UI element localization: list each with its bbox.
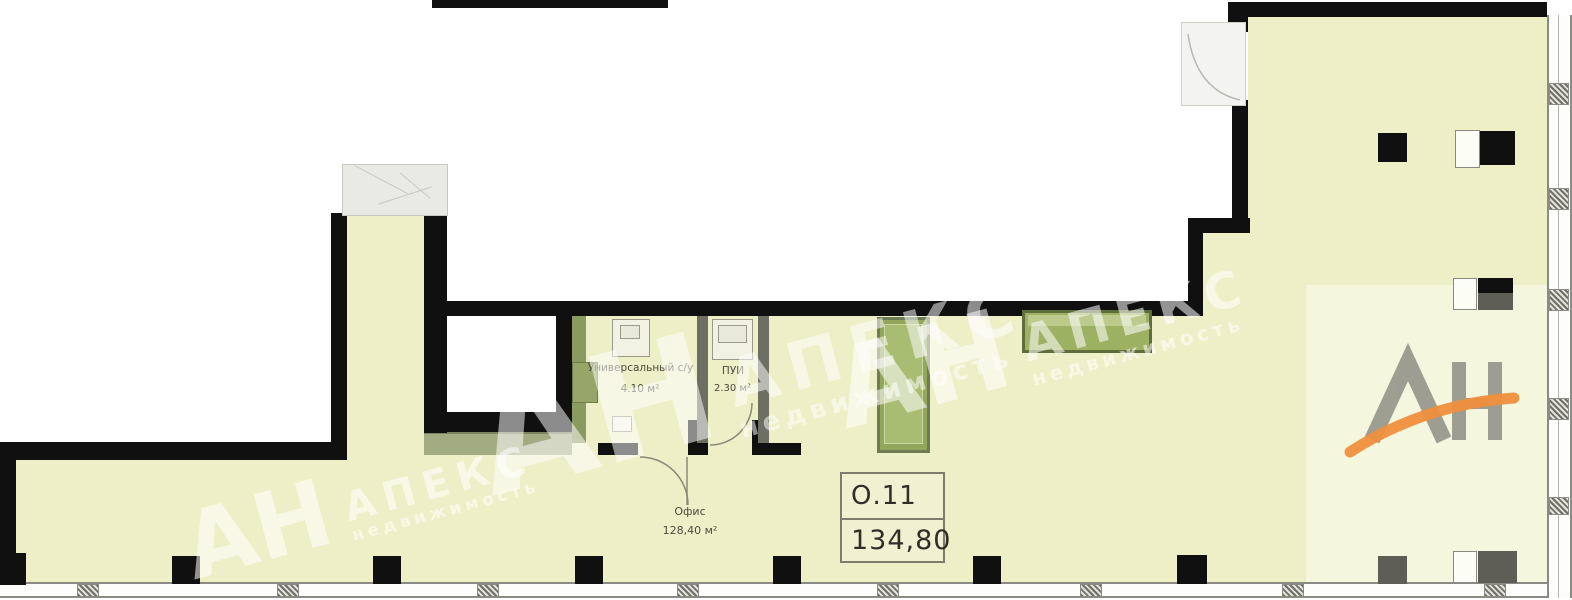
window-hatch (877, 584, 899, 597)
column (575, 556, 603, 584)
unit-total-area: 134,80 (842, 520, 943, 561)
window-hatch (1549, 497, 1569, 515)
shaft-void (447, 316, 556, 412)
green-band-under-shaft (424, 432, 572, 455)
column-outline (1453, 278, 1477, 310)
floorplan-canvas: Универсальный с/у 4.10 м² ПУИ 2.30 м² Оф… (0, 0, 1572, 600)
wall-strip-right (424, 215, 447, 433)
room-label-su-area: 4.10 м² (600, 384, 680, 395)
wall-top-edge-fragment (432, 0, 668, 8)
partition-pui-right (758, 316, 769, 443)
light-zone-overlay (1306, 285, 1547, 582)
wall-strip-left (331, 213, 347, 460)
entry-door-box (1181, 22, 1246, 106)
wall-shaft-bottom (424, 412, 572, 432)
room-label-pui-name: ПУИ (703, 366, 763, 377)
room-label-pui-area: 2.30 м² (700, 384, 765, 395)
window-hatch (1484, 584, 1506, 597)
window-hatch (1549, 398, 1569, 420)
column-gray (1478, 293, 1513, 310)
column (0, 553, 26, 585)
column (373, 556, 401, 584)
column-outline (1453, 551, 1477, 583)
column (773, 556, 801, 584)
column-outline (1455, 130, 1480, 168)
window-hatch (477, 584, 499, 597)
toilet-fixture (612, 319, 650, 357)
column (1378, 133, 1407, 162)
column (1478, 278, 1513, 293)
wall-su-bottom (598, 443, 638, 455)
column (172, 556, 200, 584)
toilet-tank (620, 325, 640, 339)
sink-fixture (612, 416, 632, 432)
wall-tower-top (1228, 2, 1547, 17)
column-gray (1378, 556, 1407, 584)
window-band-bottom (0, 582, 1572, 598)
window-hatch (77, 584, 99, 597)
column (1480, 131, 1515, 165)
window-hatch (1549, 289, 1569, 311)
wall-pui-foot (752, 443, 801, 455)
pui-shelf-inner (718, 325, 747, 343)
floor-right-tower-lower (1203, 233, 1248, 582)
stair-line (378, 186, 432, 204)
window-hatch (1282, 584, 1304, 597)
glass-door-inner (884, 324, 923, 444)
room-label-office-area: 128,40 м² (630, 525, 750, 537)
column (1177, 555, 1207, 584)
unit-info-box: О.11 134,80 (840, 472, 945, 563)
pui-shelf-fixture (712, 319, 753, 360)
sofa-back-cushion (1028, 315, 1146, 326)
partition-su-right (697, 316, 708, 443)
stair-line (354, 165, 407, 194)
window-hatch (677, 584, 699, 597)
window-hatch (277, 584, 299, 597)
room-label-office-name: Офис (640, 506, 740, 518)
wall-tower-left-upper (1232, 100, 1248, 233)
room-label-su-name: Универсальный с/у (558, 363, 723, 374)
window-hatch (1549, 83, 1569, 105)
stair-sketch-box (342, 164, 448, 216)
unit-number: О.11 (842, 474, 943, 520)
column-gray (1478, 551, 1517, 583)
wall-tower-left-lower (1188, 218, 1203, 316)
column (973, 556, 1001, 584)
wall-left-horizontal (0, 442, 347, 460)
glass-door-panel (877, 317, 930, 453)
window-hatch (1080, 584, 1102, 597)
floor-entry-strip (347, 215, 424, 582)
window-hatch (1549, 188, 1569, 210)
sofa (1022, 310, 1152, 353)
